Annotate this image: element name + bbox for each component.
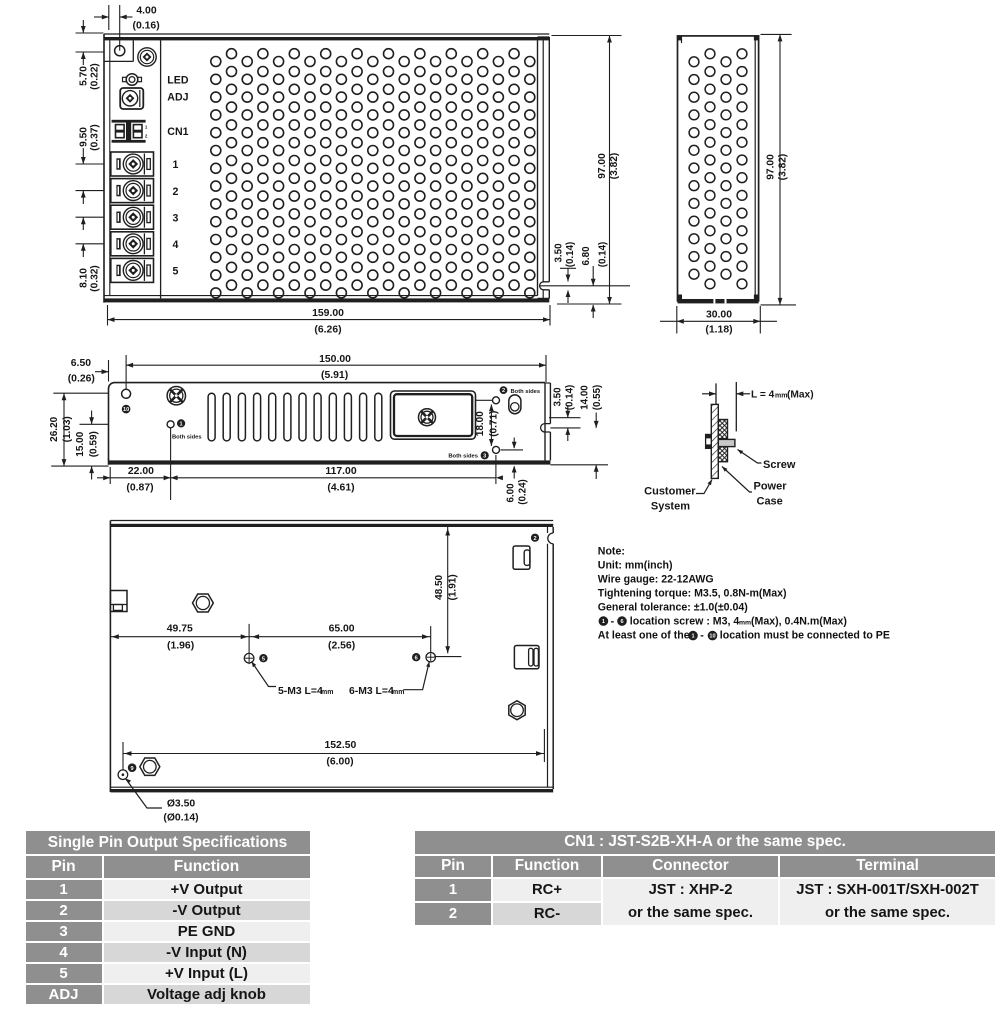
svg-text:3.50: 3.50 — [553, 387, 564, 407]
svg-text:(0.24): (0.24) — [518, 479, 529, 505]
svg-text:Both sides: Both sides — [172, 435, 202, 441]
svg-text:General tolerance: ±1.0(±0.04): General tolerance: ±1.0(±0.04) — [598, 602, 748, 614]
svg-text:Case: Case — [757, 496, 783, 508]
svg-text:System: System — [651, 501, 690, 513]
svg-text:4: 4 — [173, 239, 179, 251]
svg-text:(0.16): (0.16) — [133, 21, 160, 32]
svg-text:1: 1 — [145, 125, 148, 130]
svg-text:159.00: 159.00 — [312, 308, 344, 319]
svg-text:8.10: 8.10 — [79, 268, 90, 288]
svg-text:(Max), 0.4N.m(Max): (Max), 0.4N.m(Max) — [751, 615, 847, 627]
svg-text:18.00: 18.00 — [475, 411, 486, 436]
svg-text:Screw: Screw — [763, 459, 796, 471]
svg-text:2: 2 — [173, 186, 179, 198]
svg-text:mm: mm — [775, 393, 787, 400]
svg-text:3.50: 3.50 — [554, 243, 565, 263]
svg-text:(3.82): (3.82) — [609, 153, 620, 180]
svg-text:10: 10 — [709, 634, 715, 640]
svg-text:Both sides: Both sides — [448, 454, 478, 460]
svg-text:(6.00): (6.00) — [326, 757, 353, 768]
svg-text:(0.14): (0.14) — [565, 385, 576, 411]
svg-text:(0.87): (0.87) — [126, 483, 153, 494]
svg-text:26.20: 26.20 — [49, 416, 60, 441]
svg-text:49.75: 49.75 — [167, 624, 193, 635]
svg-text:(1.91): (1.91) — [447, 574, 458, 600]
svg-text:Both sides: Both sides — [511, 389, 541, 395]
svg-text:4.00: 4.00 — [136, 6, 156, 17]
svg-text:10: 10 — [123, 407, 129, 413]
svg-text:30.00: 30.00 — [706, 309, 732, 320]
svg-text:9.50: 9.50 — [79, 127, 90, 147]
svg-text:(2.56): (2.56) — [328, 640, 355, 651]
svg-text:(Ø0.14): (Ø0.14) — [163, 813, 198, 824]
svg-text:mm: mm — [739, 619, 751, 626]
svg-text:(0.37): (0.37) — [90, 124, 101, 151]
svg-text:L = 4: L = 4 — [751, 390, 775, 401]
svg-text:(0.26): (0.26) — [68, 373, 95, 384]
svg-text:(0.59): (0.59) — [89, 431, 100, 457]
svg-text:1: 1 — [691, 634, 694, 640]
svg-text:(0.55): (0.55) — [592, 385, 603, 411]
svg-text:LED: LED — [167, 74, 189, 86]
svg-text:2: 2 — [533, 536, 536, 542]
svg-text:6: 6 — [415, 655, 418, 661]
svg-text:48.50: 48.50 — [434, 574, 445, 599]
svg-text:-: - — [700, 630, 704, 642]
svg-text:15.00: 15.00 — [75, 431, 86, 456]
svg-text:(1.96): (1.96) — [167, 640, 194, 651]
svg-text:(0.22): (0.22) — [90, 63, 101, 90]
svg-text:5: 5 — [173, 266, 179, 278]
svg-text:Wire gauge: 22-12AWG: Wire gauge: 22-12AWG — [598, 574, 714, 586]
svg-text:location screw : M3, 4: location screw : M3, 4 — [630, 615, 740, 627]
svg-text:Note:: Note: — [598, 546, 625, 558]
svg-text:Tightening torque: M3.5, 0.8N-: Tightening torque: M3.5, 0.8N-m(Max) — [598, 588, 787, 600]
svg-text:3: 3 — [173, 212, 179, 224]
svg-text:At least one of the: At least one of the — [598, 630, 690, 642]
svg-text:-: - — [611, 615, 615, 627]
svg-text:5.70: 5.70 — [79, 66, 90, 86]
svg-text:(0.14): (0.14) — [598, 242, 609, 268]
svg-text:6: 6 — [620, 619, 623, 625]
svg-text:2: 2 — [502, 388, 505, 394]
svg-text:2: 2 — [145, 134, 148, 139]
svg-text:65.00: 65.00 — [329, 624, 355, 635]
svg-text:(Max): (Max) — [787, 390, 814, 401]
svg-text:6.00: 6.00 — [506, 483, 517, 503]
svg-text:ADJ: ADJ — [167, 92, 188, 104]
svg-text:1: 1 — [180, 422, 183, 428]
svg-text:(4.61): (4.61) — [327, 483, 354, 494]
svg-text:Customer: Customer — [644, 486, 696, 498]
svg-text:5-M3 L=4: 5-M3 L=4 — [278, 686, 323, 697]
svg-text:6-M3 L=4: 6-M3 L=4 — [349, 686, 394, 697]
svg-text:152.50: 152.50 — [325, 740, 357, 751]
svg-text:(0.71): (0.71) — [489, 411, 500, 437]
svg-text:(6.26): (6.26) — [314, 325, 341, 336]
svg-text:14.00: 14.00 — [579, 385, 590, 410]
svg-text:(1.18): (1.18) — [705, 324, 732, 335]
svg-text:150.00: 150.00 — [319, 354, 351, 365]
svg-text:(5.91): (5.91) — [321, 370, 348, 381]
svg-text:6.80: 6.80 — [581, 246, 592, 266]
svg-text:(0.32): (0.32) — [90, 265, 101, 292]
svg-text:mm: mm — [321, 689, 333, 696]
svg-text:location must be connected to: location must be connected to PE — [720, 630, 890, 642]
svg-text:mm: mm — [392, 689, 404, 696]
svg-text:1: 1 — [602, 619, 605, 625]
svg-text:5: 5 — [262, 656, 265, 662]
svg-text:(1.03): (1.03) — [62, 416, 73, 442]
svg-text:3: 3 — [483, 453, 486, 459]
svg-text:97.00: 97.00 — [597, 153, 608, 179]
svg-text:Unit: mm(inch): Unit: mm(inch) — [598, 560, 673, 572]
svg-text:Ø3.50: Ø3.50 — [167, 799, 196, 810]
svg-text:22.00: 22.00 — [128, 466, 154, 477]
svg-text:97.00: 97.00 — [766, 154, 777, 180]
svg-text:(0.14): (0.14) — [565, 242, 576, 268]
svg-text:(3.82): (3.82) — [778, 154, 789, 181]
svg-text:9: 9 — [131, 766, 134, 772]
svg-text:1: 1 — [173, 159, 179, 171]
svg-text:Power: Power — [754, 481, 788, 493]
svg-text:CN1: CN1 — [167, 126, 188, 138]
svg-text:117.00: 117.00 — [325, 466, 356, 477]
svg-text:6.50: 6.50 — [71, 358, 91, 369]
